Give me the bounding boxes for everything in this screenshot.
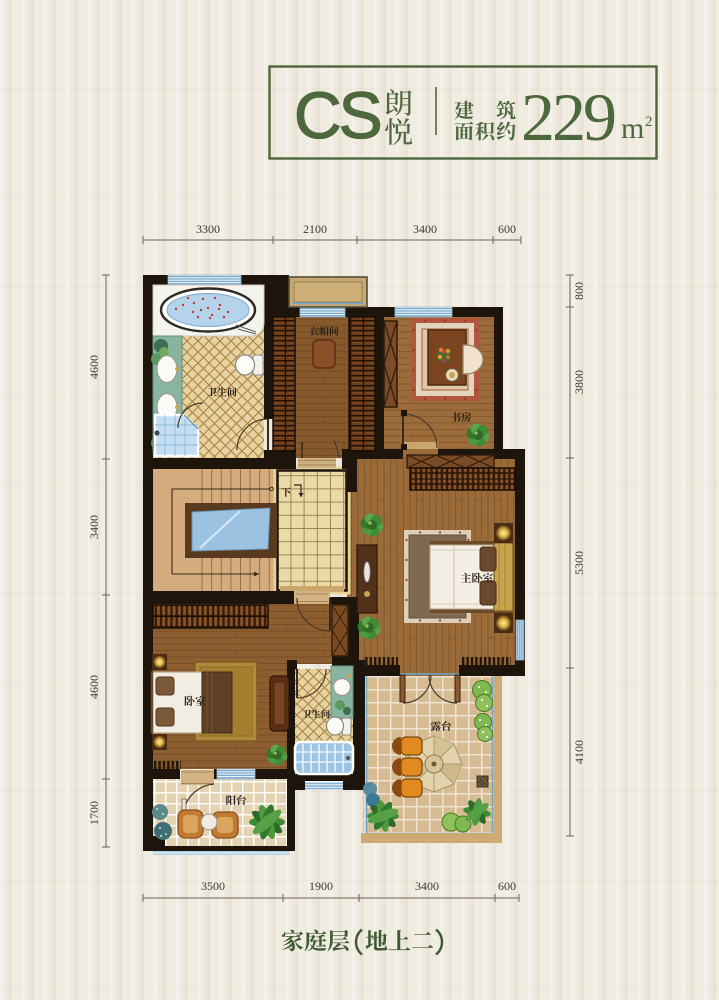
svg-text:3500: 3500 <box>201 879 225 893</box>
svg-text:5300: 5300 <box>572 551 586 575</box>
svg-text:1900: 1900 <box>309 879 333 893</box>
svg-text:CS: CS <box>294 78 380 152</box>
svg-text:229: 229 <box>521 79 615 155</box>
svg-text:600: 600 <box>498 879 516 893</box>
svg-text:2: 2 <box>645 114 653 130</box>
svg-text:4600: 4600 <box>87 675 101 699</box>
svg-text:3400: 3400 <box>415 879 439 893</box>
svg-text:3800: 3800 <box>572 370 586 394</box>
svg-text:m: m <box>621 112 644 145</box>
svg-text:3400: 3400 <box>413 222 437 236</box>
svg-text:600: 600 <box>498 222 516 236</box>
svg-text:1700: 1700 <box>87 801 101 825</box>
svg-text:800: 800 <box>572 282 586 300</box>
svg-text:3400: 3400 <box>87 515 101 539</box>
svg-text:3300: 3300 <box>196 222 220 236</box>
svg-text:2100: 2100 <box>303 222 327 236</box>
svg-text:4600: 4600 <box>87 355 101 379</box>
svg-text:4100: 4100 <box>572 740 586 764</box>
